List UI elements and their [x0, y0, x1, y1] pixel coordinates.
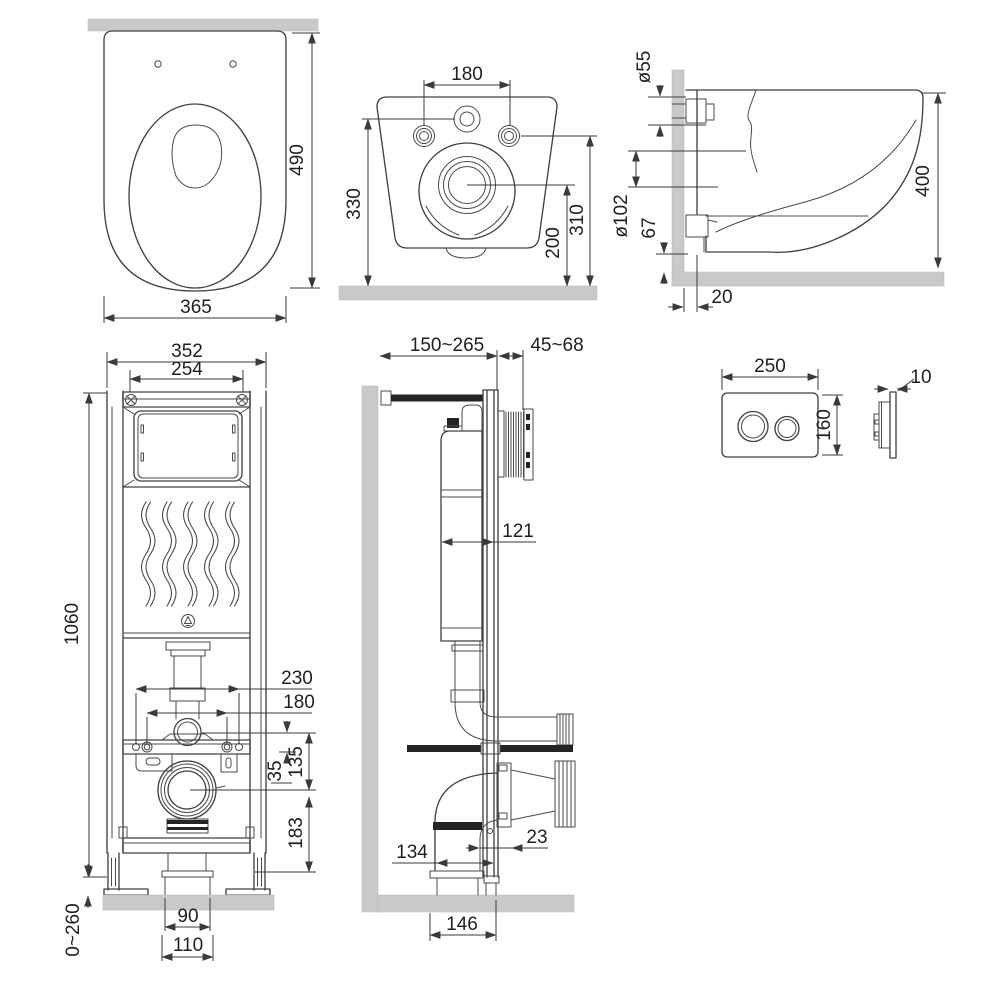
screw-icon: [237, 395, 248, 406]
floor-bar-frame-side: [378, 895, 574, 912]
dim-label-183: 183: [286, 817, 307, 849]
wall-support-rod: [391, 395, 483, 402]
dim-label-134: 134: [396, 842, 428, 863]
flush-plate: [722, 393, 818, 457]
flush-button-small: [775, 417, 799, 441]
dim-label-bolt-spacing-180: 180: [451, 64, 483, 85]
dim-label-plate-height-160: 160: [814, 409, 835, 441]
cistern-body: [441, 431, 482, 641]
dim-label-plate-width-250: 250: [754, 356, 786, 377]
outlet-flange: [555, 761, 575, 827]
dim-label-frame-height-1060: 1060: [62, 603, 83, 645]
dim-label-23: 23: [526, 827, 547, 848]
toilet-back-view: 180 330 310 200: [339, 64, 597, 300]
dim-label-height-330: 330: [344, 188, 365, 220]
floor-bar: [339, 286, 597, 300]
toilet-top-view: 490 365: [88, 19, 320, 323]
flush-button-large: [738, 412, 768, 442]
dim-label-depth-400: 400: [913, 165, 934, 197]
corrugated-connector: [506, 412, 524, 477]
mount-hole-left: [414, 126, 435, 147]
floor-bar-side: [672, 272, 944, 286]
toilet-side-view: ø55 ø102 67 400 20: [611, 51, 946, 312]
dim-label-bolt-dia-55: ø55: [634, 51, 655, 84]
technical-drawing: 490 365 180 330 310 200: [0, 0, 1000, 1000]
dim-label-hanger-spacing-254: 254: [171, 359, 203, 380]
dim-label-plate-thickness-10: 10: [910, 367, 931, 388]
frame-side-view: 150~265 45~68 121: [362, 335, 584, 941]
cistern-access-window: [134, 411, 242, 481]
dim-label-outlet-dia-102: ø102: [611, 194, 632, 237]
dim-label-wall-gap-20: 20: [711, 287, 732, 308]
corrugated-outlet-end: [557, 714, 573, 745]
dim-label-outlet-drop-67: 67: [639, 217, 660, 238]
dim-label-outlet-height-200: 200: [543, 227, 564, 259]
dim-label-front-adjust: 45~68: [530, 335, 583, 356]
screw-icon: [126, 395, 137, 406]
drawing-page: 490 365 180 330 310 200: [0, 0, 1000, 1000]
brand-logo-icon: [182, 615, 195, 628]
dim-label-depth-490: 490: [287, 144, 308, 176]
flush-plate-side-view: 10: [874, 367, 932, 458]
dim-label-cistern-depth-121: 121: [502, 521, 534, 542]
dim-label-outer-bolt-230: 230: [281, 668, 313, 689]
dim-label-foot-adjust: 0~260: [63, 903, 84, 956]
dim-label-inner-bolt-180: 180: [283, 692, 315, 713]
dim-label-135: 135: [286, 746, 307, 778]
dim-label-drain-90: 90: [177, 906, 198, 927]
insulation-wave-pattern: [142, 502, 240, 606]
dim-label-flange-110: 110: [173, 935, 203, 956]
dim-label-bolt-height-310: 310: [567, 204, 588, 236]
wall-bar: [88, 19, 318, 31]
dim-label-35: 35: [265, 760, 286, 781]
dim-label-width-365: 365: [180, 297, 212, 318]
dim-label-depth-adjust: 150~265: [410, 335, 485, 356]
wall-bar-frame-side: [362, 386, 378, 912]
mount-hole-right: [499, 126, 520, 147]
frame-front-view: 352 254 1060 230 180 35 135 183 0~260 90…: [62, 341, 316, 961]
flush-plate-front-view: 250 160: [722, 356, 843, 457]
dim-label-146: 146: [446, 914, 478, 935]
